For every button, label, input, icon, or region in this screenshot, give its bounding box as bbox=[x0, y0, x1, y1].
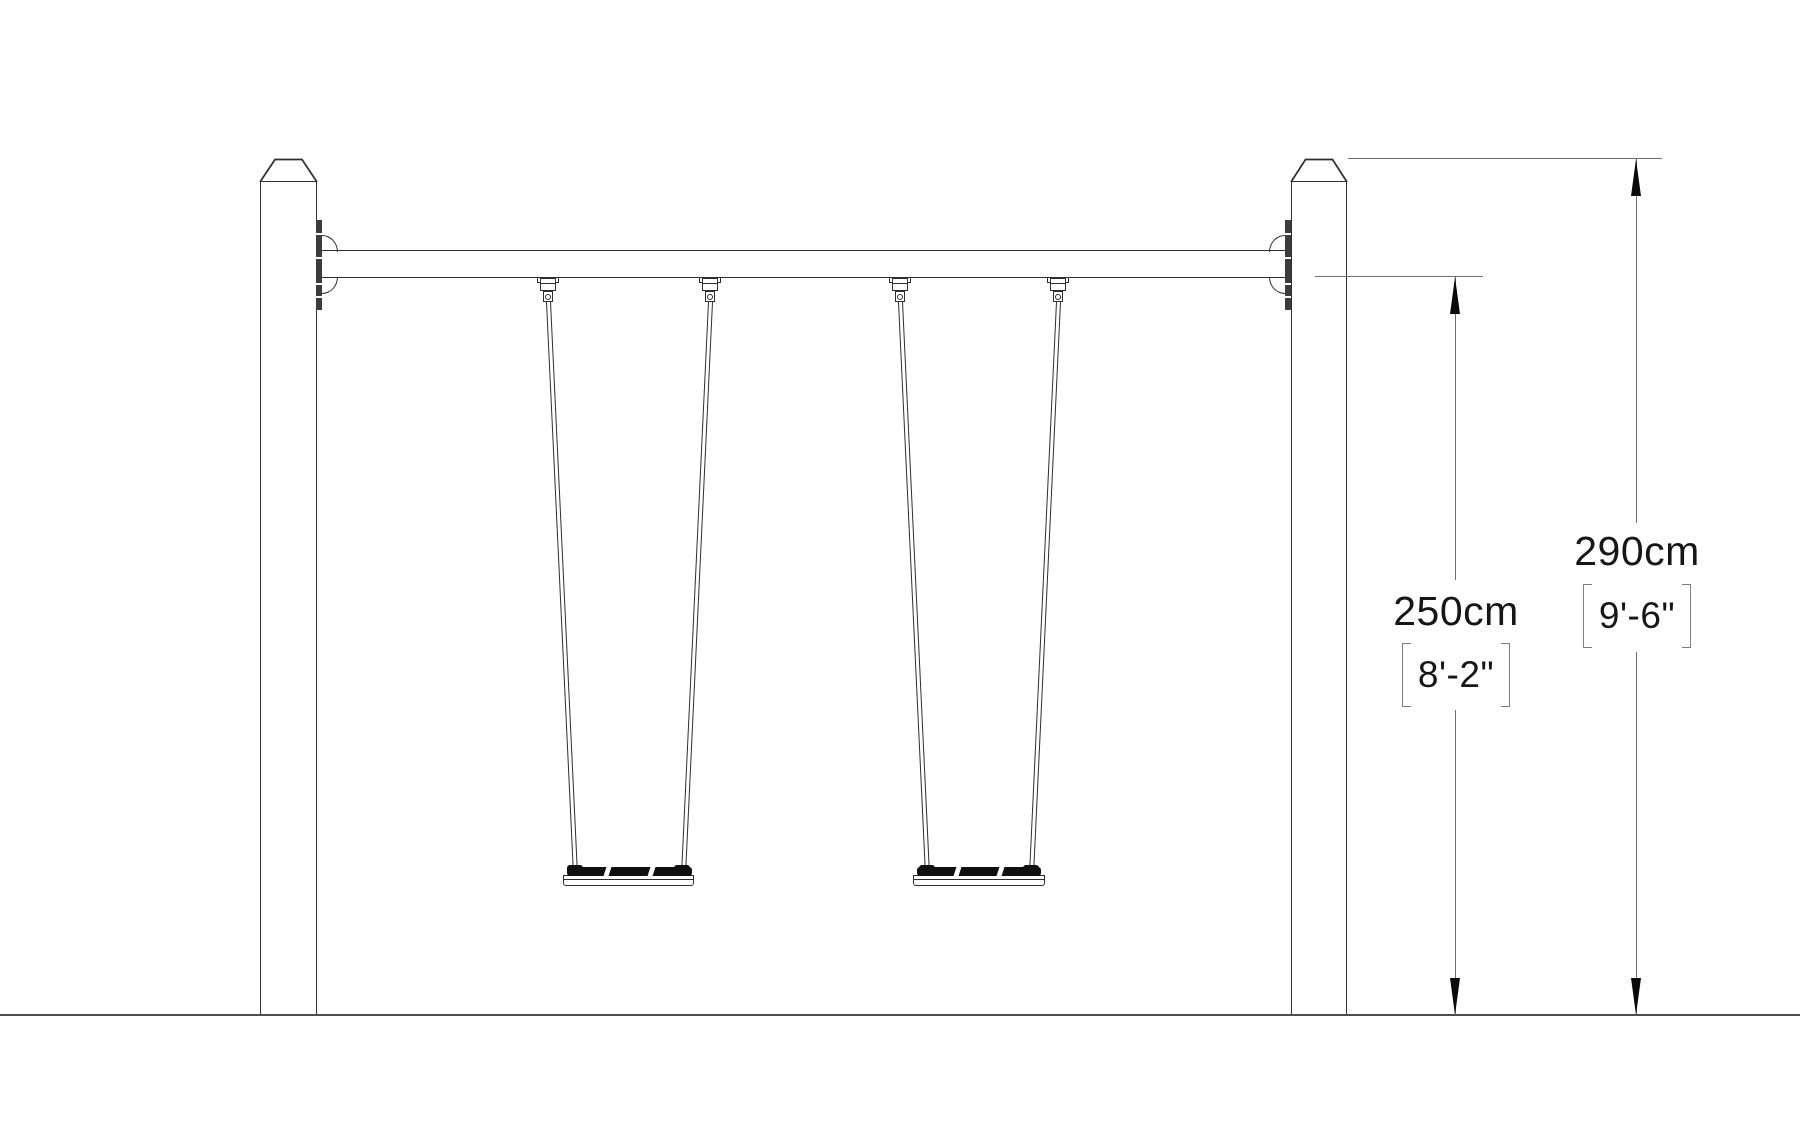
flange-bolt-mark bbox=[1285, 233, 1291, 235]
arrowhead-up-icon bbox=[1450, 277, 1460, 314]
rope-seat-connector bbox=[919, 865, 935, 872]
clamp-bar bbox=[1051, 283, 1065, 284]
clamp-bar bbox=[893, 283, 907, 284]
overall-height-metric-label: 290cm bbox=[1527, 529, 1747, 574]
clamp-bar bbox=[703, 283, 717, 284]
swing-hanger-clamp bbox=[892, 278, 908, 291]
clamp-bar bbox=[541, 283, 555, 284]
flange-bolt-mark bbox=[1285, 296, 1291, 298]
shackle-pin bbox=[545, 294, 551, 300]
swing-hanger-clamp bbox=[540, 278, 556, 291]
seat-surface-gap bbox=[604, 867, 612, 876]
right-beam-flange bbox=[1285, 220, 1291, 310]
right-bracket bbox=[1501, 643, 1510, 707]
shackle-pin bbox=[1055, 294, 1061, 300]
shackle-pin bbox=[897, 294, 903, 300]
dimension-line-hanger-height bbox=[1455, 710, 1456, 1015]
arrowhead-down-icon bbox=[1631, 978, 1641, 1015]
dimension-line-overall-height bbox=[1636, 652, 1637, 1015]
gusset-right-lower bbox=[1269, 277, 1285, 294]
swing-hanger-clamp bbox=[1050, 278, 1066, 291]
ground-line bbox=[0, 1014, 1800, 1016]
swing2-seat-tray bbox=[913, 875, 1045, 886]
seat-surface-gap bbox=[648, 867, 656, 876]
flange-bolt-mark bbox=[316, 257, 322, 259]
swing2-left-rope bbox=[898, 302, 930, 870]
flange-bolt-mark bbox=[1285, 283, 1291, 285]
gusset-left-lower bbox=[322, 277, 338, 294]
seat-tray-line bbox=[914, 879, 1044, 880]
seat-surface-gap bbox=[997, 867, 1005, 876]
swing1-right-rope bbox=[681, 302, 713, 870]
flange-bolt-mark bbox=[1285, 257, 1291, 259]
top-beam bbox=[321, 250, 1286, 278]
seat-surface-gap bbox=[954, 867, 962, 876]
rope-seat-connector bbox=[674, 865, 690, 872]
swing1-seat-tray bbox=[563, 875, 694, 886]
overall-height-imperial-label: 9'-6" bbox=[1599, 595, 1675, 637]
swing1-left-rope bbox=[546, 302, 578, 870]
left-bracket bbox=[1583, 584, 1592, 648]
dimension-line-overall-height bbox=[1636, 159, 1637, 523]
swing-hanger-clamp bbox=[702, 278, 718, 291]
hanger-height-imperial-group: 8'-2" bbox=[1346, 642, 1566, 708]
extension-line-post-top bbox=[1348, 158, 1662, 159]
left-bracket bbox=[1402, 643, 1411, 707]
dimension-line-hanger-height bbox=[1455, 277, 1456, 580]
rope-seat-connector bbox=[1023, 865, 1039, 872]
right-post bbox=[1291, 181, 1347, 1015]
right-bracket bbox=[1682, 584, 1691, 648]
left-post bbox=[260, 181, 317, 1015]
shackle-pin bbox=[707, 294, 713, 300]
hanger-height-imperial-label: 8'-2" bbox=[1418, 654, 1494, 696]
seat-tray-line bbox=[564, 879, 693, 880]
gusset-right-upper bbox=[1269, 235, 1285, 252]
swing2-right-rope bbox=[1029, 302, 1061, 870]
gusset-left-upper bbox=[322, 235, 338, 252]
left-beam-flange bbox=[316, 220, 322, 310]
swing-set-elevation-drawing: 250cm 8'-2" 290cm 9'-6" bbox=[0, 0, 1800, 1125]
flange-bolt-mark bbox=[316, 296, 322, 298]
left-post-cap bbox=[259, 157, 318, 183]
right-post-cap bbox=[1290, 157, 1348, 183]
overall-height-imperial-group: 9'-6" bbox=[1527, 583, 1747, 649]
rope-seat-connector bbox=[567, 865, 583, 872]
arrowhead-down-icon bbox=[1450, 978, 1460, 1015]
arrowhead-up-icon bbox=[1631, 159, 1641, 196]
